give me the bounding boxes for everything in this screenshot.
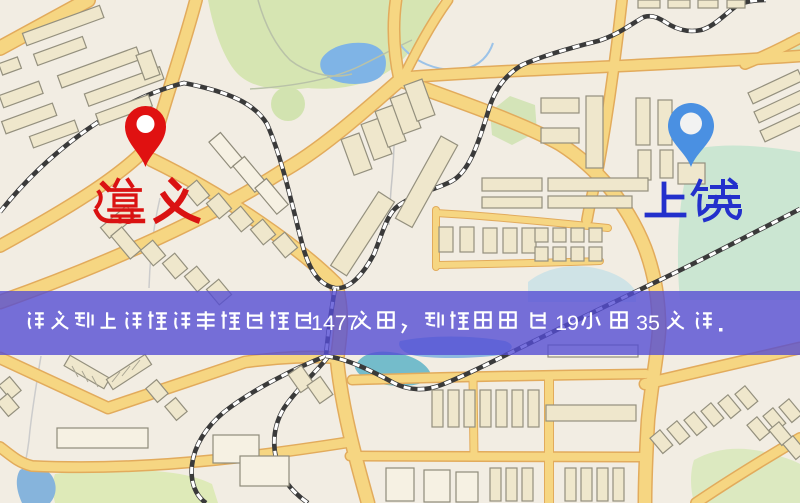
svg-text:19: 19 bbox=[555, 311, 579, 335]
svg-text:1477: 1477 bbox=[311, 311, 359, 335]
svg-text:35: 35 bbox=[636, 311, 660, 335]
